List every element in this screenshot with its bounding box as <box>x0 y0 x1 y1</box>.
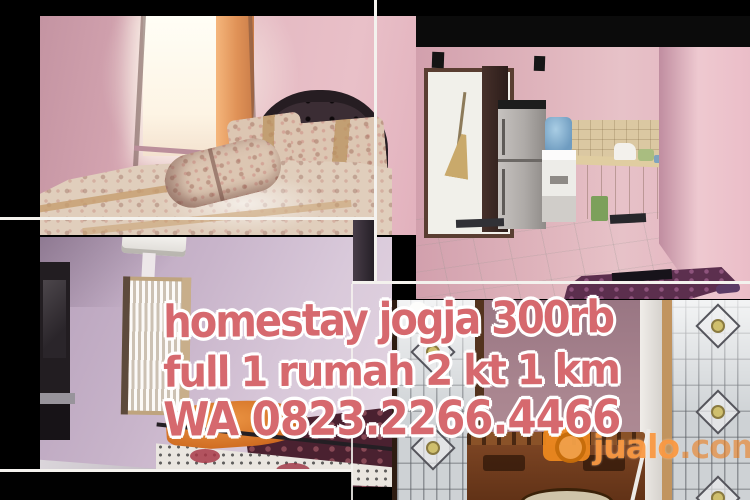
ad-text-overlay: homestay jogja 300rb full 1 rumah 2 kt 1… <box>0 0 750 500</box>
ad-title-line: homestay jogja 300rb <box>163 292 613 349</box>
ad-phone-line: WA 0823.2266.4466 <box>163 389 620 447</box>
listing-photo-collage: 1 <box>0 0 750 500</box>
